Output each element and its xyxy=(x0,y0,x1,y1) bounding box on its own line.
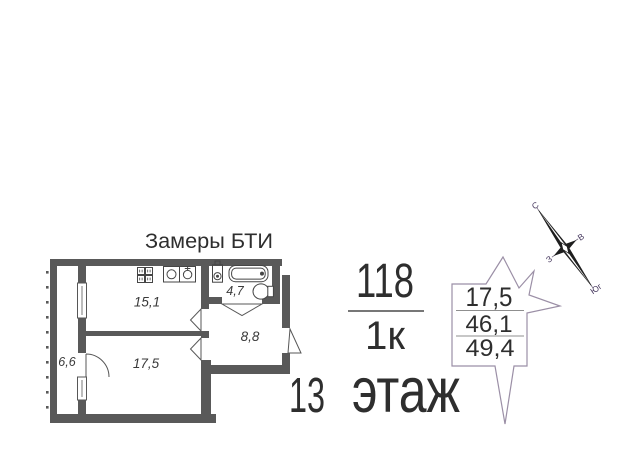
bathroom-door-leaf xyxy=(222,304,262,316)
living-window-symbol xyxy=(78,377,87,400)
entrance-door-leaf xyxy=(288,329,301,353)
living-door-leaf xyxy=(191,338,202,360)
stamp-total-area: 49,4 xyxy=(466,335,515,362)
balcony-glazing-ticks xyxy=(46,271,49,409)
kitchen-sink-icon xyxy=(164,267,196,283)
bti-plan-sheet: 15,1 17,5 8,8 4,7 6,6 Замеры БТИ 118 1к … xyxy=(0,0,640,473)
kitchen-window-symbol xyxy=(78,283,87,318)
apartment-layout: 1к xyxy=(365,314,405,358)
bathroom-area-label: 4,7 xyxy=(226,284,244,298)
area-stamp: 17,5 46,1 49,4 xyxy=(452,257,560,424)
compass-rose: С В З Юг xyxy=(514,188,615,306)
living-area-label: 17,5 xyxy=(133,356,160,371)
wall-central xyxy=(201,331,209,338)
bathtub-icon xyxy=(229,266,268,282)
toilet-icon xyxy=(253,284,273,299)
stove-icon xyxy=(138,268,153,283)
compass-east-label: В xyxy=(576,231,587,243)
room-labels: 15,1 17,5 8,8 4,7 6,6 xyxy=(58,284,260,371)
kitchen-door-leaf xyxy=(191,309,202,331)
floor-word: этаж xyxy=(352,356,460,426)
stamp-living-area: 17,5 xyxy=(466,282,513,312)
compass-south-label: Юг xyxy=(588,281,603,296)
kitchen-area-label: 15,1 xyxy=(134,295,160,310)
compass-north-label: С xyxy=(530,200,541,212)
wall-bath-right xyxy=(272,266,280,304)
wall-balcony-inner xyxy=(78,318,86,353)
wall-bath-bottom xyxy=(201,297,222,304)
compass-west-label: З xyxy=(544,254,554,265)
apartment-number: 118 xyxy=(356,255,414,308)
sheet-title: Замеры БТИ xyxy=(145,230,273,253)
wall-bottom xyxy=(50,414,216,423)
floor-number: 13 xyxy=(289,369,325,423)
balcony-door-arc xyxy=(86,354,109,377)
wall-balcony-inner xyxy=(78,266,86,283)
wall-balcony-inner xyxy=(78,400,86,414)
floor-plan-drawing: 15,1 17,5 8,8 4,7 6,6 Замеры БТИ 118 1к … xyxy=(0,0,640,473)
hall-area-label: 8,8 xyxy=(241,329,260,344)
stamp-apartment-area: 46,1 xyxy=(466,311,513,338)
wall-hall-right xyxy=(282,275,290,328)
wall-balcony-outer xyxy=(50,259,57,423)
wall-room-divider xyxy=(86,331,201,336)
wall-hall-bottom xyxy=(201,365,290,374)
balcony-area-label: 6,6 xyxy=(58,355,75,369)
wall-top xyxy=(50,259,282,266)
